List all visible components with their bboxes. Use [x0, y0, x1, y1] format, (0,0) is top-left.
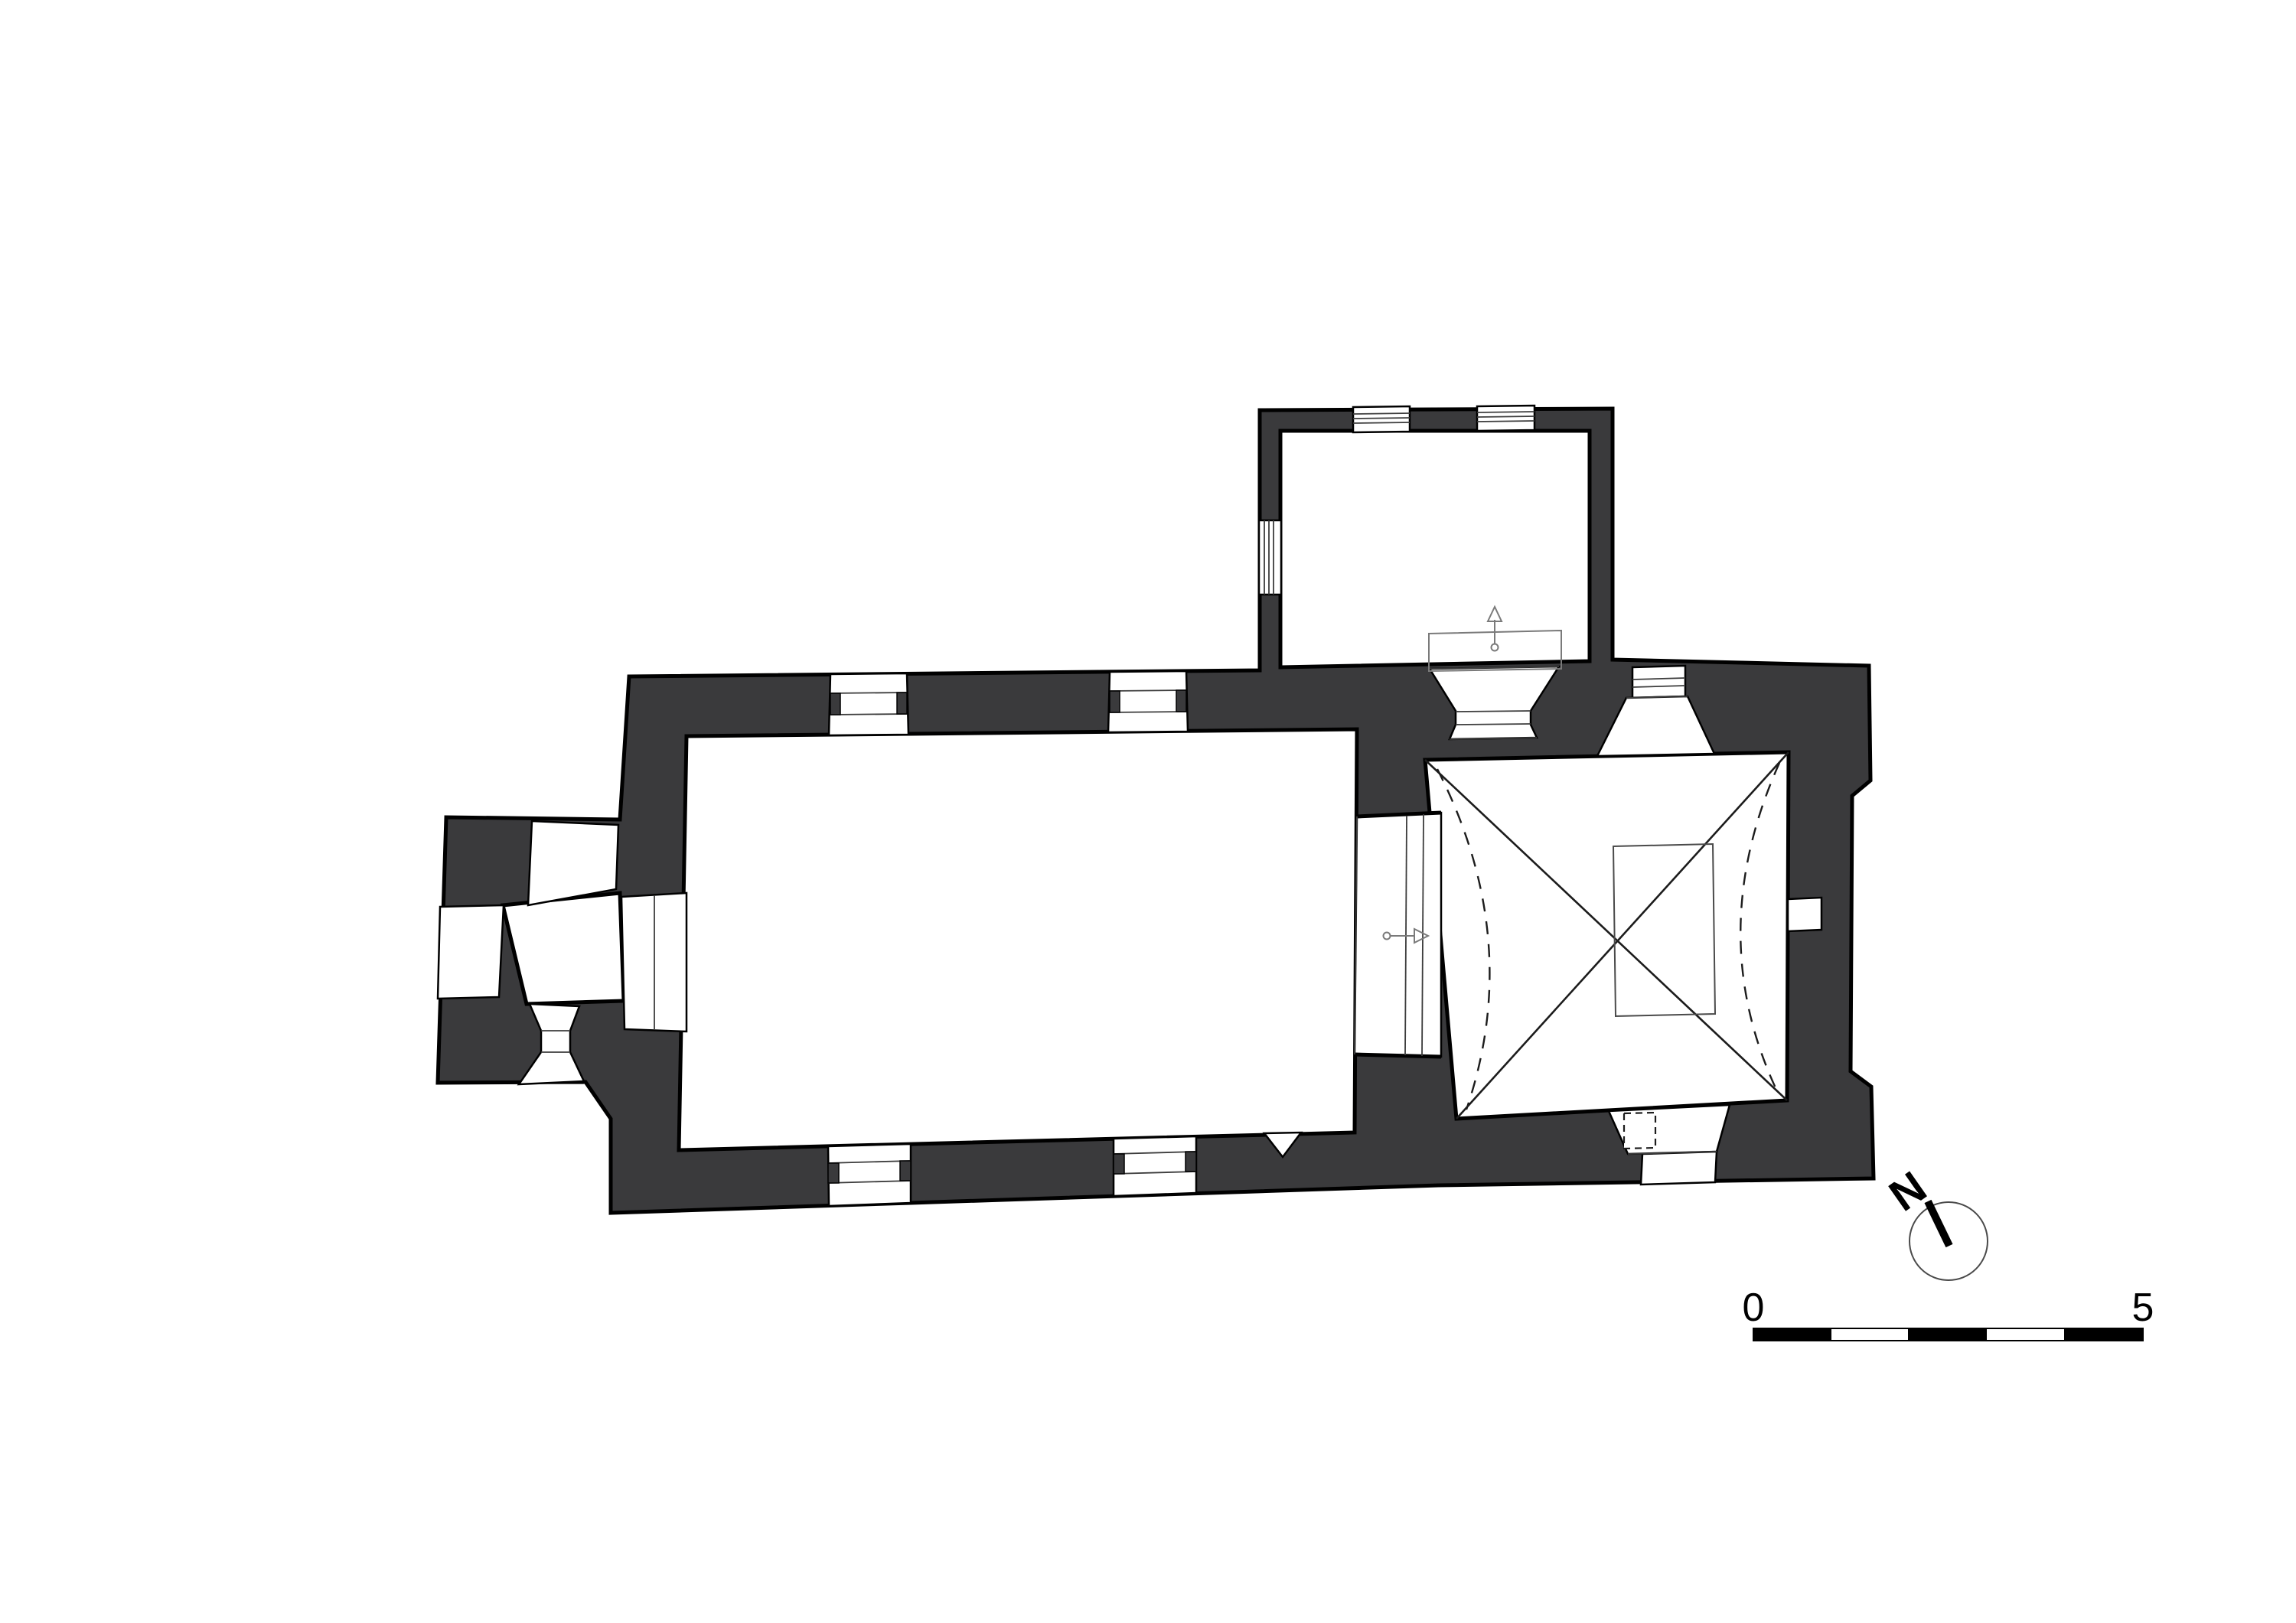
east-wall-niche	[1788, 898, 1821, 931]
chancel-arch-opening	[1355, 813, 1441, 1057]
floor-plan: N 0 5	[0, 0, 2296, 1623]
masonry-walls	[438, 409, 1874, 1213]
vault-arc-east	[1740, 763, 1779, 1091]
porch-west-opening	[438, 905, 504, 999]
cross-vault	[1425, 752, 1789, 1119]
west-portal	[621, 893, 687, 1031]
door-swing-arrow-north	[1488, 607, 1502, 651]
annex-west-window	[1259, 520, 1281, 595]
walls	[438, 409, 1874, 1213]
nave-north-window-2	[1108, 671, 1188, 732]
nave-north-window-1	[829, 673, 908, 735]
nave-south-window-2	[1114, 1136, 1196, 1196]
scale-start-label: 0	[1743, 1286, 1765, 1330]
scale-end-label: 5	[2132, 1286, 2154, 1330]
north-arrow-icon: N	[1880, 1162, 1988, 1280]
annex-north-window-1	[1353, 406, 1410, 432]
nave-south-window-1	[828, 1144, 911, 1206]
annex-north-window-2	[1477, 406, 1534, 431]
north-label: N	[1880, 1162, 1936, 1221]
blocked-doorway-outline	[1624, 1113, 1655, 1149]
scale-bar: 0 5	[1743, 1286, 2154, 1341]
